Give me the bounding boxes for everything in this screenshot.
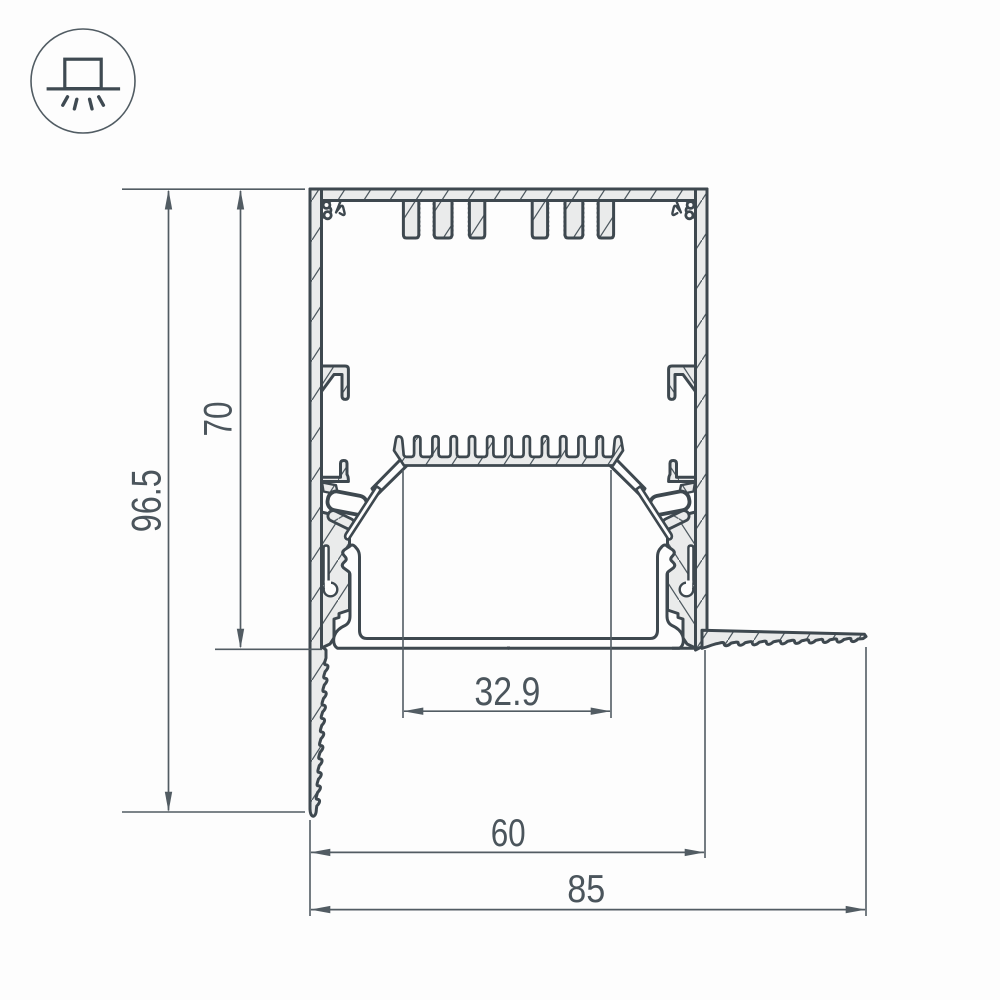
svg-text:96.5: 96.5 [123, 469, 170, 532]
svg-text:85: 85 [567, 868, 605, 911]
svg-text:60: 60 [491, 812, 526, 855]
svg-text:70: 70 [197, 402, 241, 437]
svg-text:32.9: 32.9 [474, 670, 540, 714]
